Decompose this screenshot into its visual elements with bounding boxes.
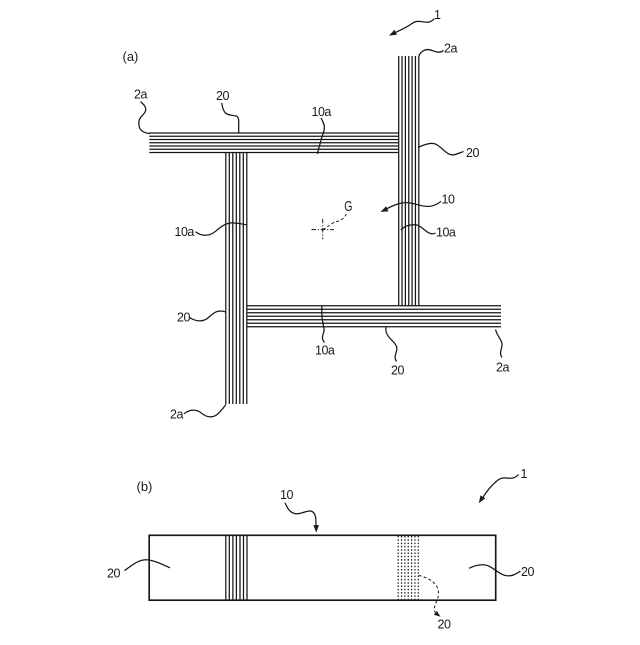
svg-text:20: 20: [466, 146, 479, 160]
svg-text:G: G: [344, 199, 352, 215]
svg-text:20: 20: [438, 618, 451, 632]
svg-text:2a: 2a: [444, 42, 457, 56]
svg-text:10: 10: [442, 193, 455, 207]
svg-text:2a: 2a: [496, 360, 509, 374]
svg-text:(b): (b): [137, 479, 153, 494]
svg-text:(a): (a): [123, 49, 139, 64]
svg-text:10a: 10a: [175, 225, 195, 239]
svg-text:10a: 10a: [312, 105, 332, 119]
svg-text:20: 20: [177, 311, 190, 325]
svg-text:20: 20: [391, 363, 404, 377]
svg-text:1: 1: [434, 8, 441, 22]
svg-text:20: 20: [521, 565, 534, 579]
svg-text:10a: 10a: [436, 225, 456, 239]
svg-text:2a: 2a: [134, 87, 147, 101]
svg-text:2a: 2a: [170, 408, 183, 422]
svg-text:1: 1: [521, 467, 528, 481]
svg-text:20: 20: [216, 89, 229, 103]
svg-text:10: 10: [280, 488, 293, 502]
svg-text:20: 20: [107, 567, 120, 581]
svg-text:10a: 10a: [315, 343, 335, 357]
